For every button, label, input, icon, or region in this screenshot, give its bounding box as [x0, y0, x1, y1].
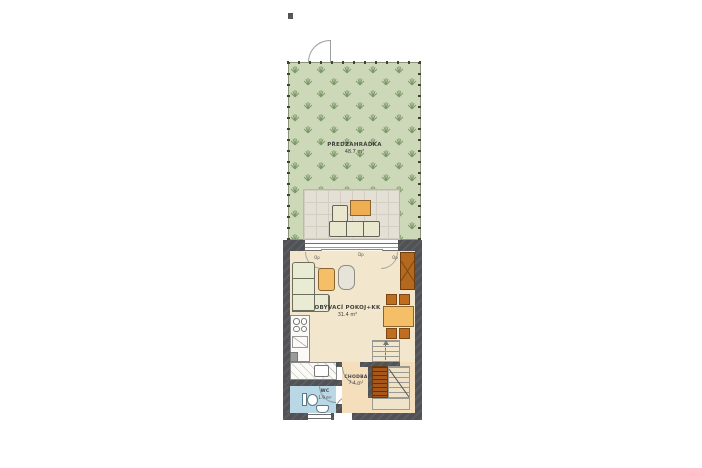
outdoor-sofa-back — [332, 205, 348, 222]
stairs-lower-flight — [372, 366, 388, 398]
wc-wall-right-top — [336, 380, 342, 386]
wc-label: WC 1.9 m² — [314, 389, 336, 400]
wall-left — [283, 240, 290, 420]
wc-area: 1.9 m² — [314, 395, 336, 400]
wall-bottom-a — [283, 413, 308, 420]
living-room-label: OBÝVACÍ POKOJ+KK 31.4 m² — [300, 305, 395, 318]
kitchen-appliance — [290, 352, 298, 362]
kitchen-sink — [314, 365, 329, 377]
window-band-mullion — [305, 247, 398, 248]
outdoor-table — [350, 200, 371, 216]
floorplan-canvas: PŘEDZAHRÁDKA 48.7 m² Op Dp Op — [0, 0, 702, 468]
outdoor-sofa — [329, 221, 380, 237]
dining-chair — [399, 294, 410, 305]
garden-room-area: 48.7 m² — [288, 149, 421, 155]
wc-window — [308, 414, 331, 419]
dining-chair — [386, 294, 397, 305]
stairs-cut-line — [389, 367, 409, 397]
dining-chair — [386, 328, 397, 339]
armchair — [318, 268, 335, 291]
hallway-name: CHODBA — [342, 375, 370, 381]
stairs-arrow-head — [383, 340, 389, 345]
stairs-right-flight — [388, 366, 410, 398]
burner — [301, 326, 308, 333]
wc-wall-right-bottom — [336, 404, 342, 413]
entrance-gap — [334, 413, 352, 420]
wardrobe-cross — [401, 253, 414, 289]
wall-bottom-c — [352, 413, 421, 420]
stairs-landing — [372, 398, 410, 410]
burner — [301, 318, 308, 325]
stairs-direction-arrow — [385, 343, 386, 360]
fence-post-stub — [288, 13, 293, 19]
garden-room-name: PŘEDZAHRÁDKA — [288, 142, 421, 149]
burner — [293, 326, 300, 333]
hallway-label: CHODBA 7.4 m² — [342, 375, 370, 386]
garden-label: PŘEDZAHRÁDKA 48.7 m² — [288, 142, 421, 155]
living-room-area: 31.4 m² — [300, 312, 395, 318]
cooktop — [292, 317, 308, 333]
garden-gate-arc — [308, 40, 330, 62]
wall-right — [415, 240, 422, 420]
wc-sink — [316, 405, 329, 413]
garden-gate-leaf — [330, 40, 331, 62]
wardrobe — [400, 252, 415, 290]
living-room-name: OBÝVACÍ POKOJ+KK — [300, 305, 395, 312]
coffee-table — [338, 265, 355, 290]
opening-label-middle: Dp — [354, 252, 368, 257]
dining-chair — [399, 328, 410, 339]
dishwasher — [292, 336, 308, 348]
hallway-area: 7.4 m² — [342, 381, 370, 387]
opening-label-left: Op — [310, 255, 324, 260]
burner — [293, 318, 300, 325]
